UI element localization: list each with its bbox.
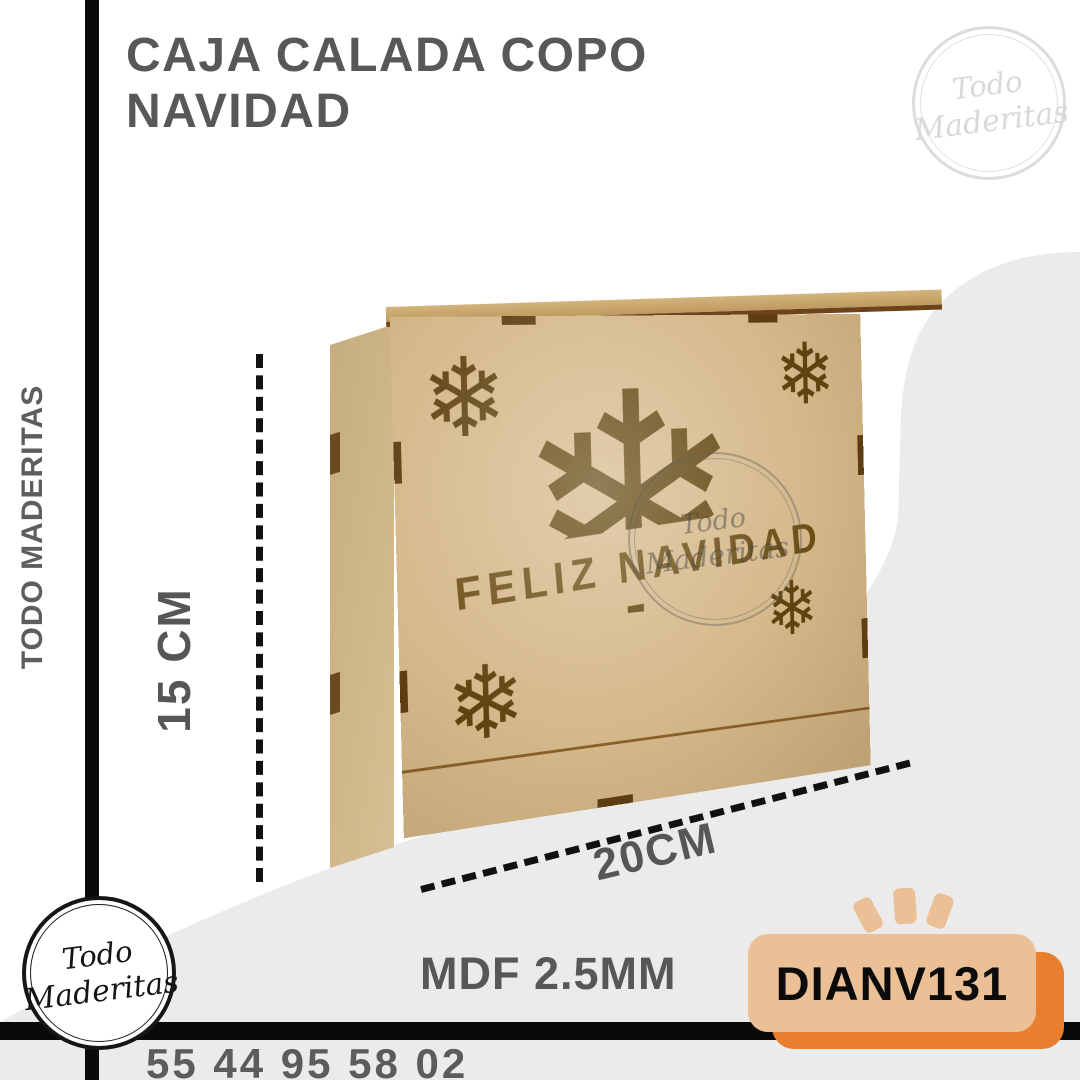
finger-joint-notch — [857, 435, 864, 475]
brand-watermark-logo: Todo Maderitas — [628, 452, 802, 626]
finger-joint-notch — [597, 794, 633, 808]
box-front-face: ❄ ❄ ❄ ❄ ❄ FELIZ NAVIDAD — [390, 314, 871, 838]
phone-number: 55 44 95 58 02 — [146, 1040, 468, 1088]
finger-joint-notch — [330, 432, 340, 475]
sku-badge: DIANV131 — [748, 934, 1036, 1032]
height-dimension-label: 15 CM — [147, 550, 197, 770]
finger-joint-notch — [748, 314, 777, 322]
badge-ray-decoration — [893, 887, 917, 924]
box-left-side-panel — [330, 324, 394, 868]
snowflake-icon: ❄ — [774, 332, 836, 418]
vertical-brand-label: TODO MADERITAS — [16, 377, 60, 677]
brand-logo-text: Todo Maderitas — [639, 497, 790, 580]
finger-joint-notch — [330, 672, 340, 715]
material-label: MDF 2.5MM — [420, 948, 677, 1000]
snowflake-icon: ❄ — [419, 343, 508, 455]
brand-logo-text: Todo Maderitas — [18, 928, 180, 1017]
page-title: CAJA CALADA COPO NAVIDAD — [126, 28, 766, 139]
finger-joint-notch — [502, 316, 536, 325]
brand-logo-bottom-left: Todo Maderitas — [22, 896, 176, 1050]
finger-joint-notch — [862, 618, 869, 658]
brand-logo-text: Todo Maderitas — [908, 58, 1070, 147]
height-dimension-dashed-line — [256, 354, 263, 882]
snowflake-icon: ❄ — [444, 648, 526, 758]
finger-joint-notch — [399, 670, 408, 713]
brand-logo-top-right: Todo Maderitas — [912, 26, 1066, 180]
finger-joint-notch — [393, 442, 402, 484]
